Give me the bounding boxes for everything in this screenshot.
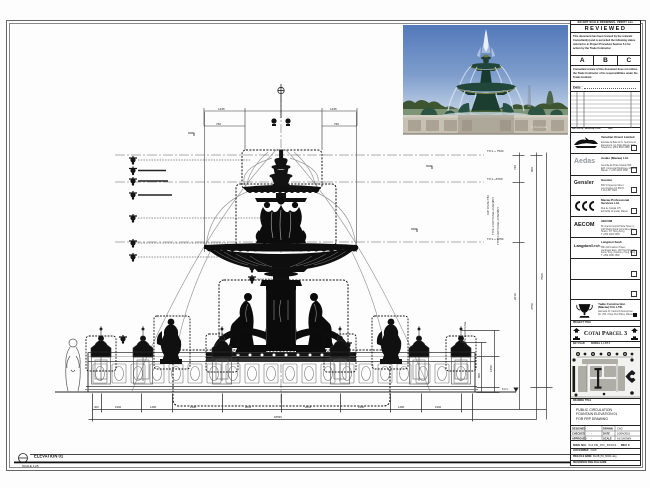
svg-text:-: - xyxy=(591,433,592,436)
svg-text:TYPE 3 FRP PANEL ASSEMBLY: TYPE 3 FRP PANEL ASSEMBLY xyxy=(491,197,495,235)
svg-text:740: 740 xyxy=(513,165,517,170)
svg-text:ELEVATION 01: ELEVATION 01 xyxy=(34,454,64,459)
svg-text:2818: 2818 xyxy=(245,405,252,409)
svg-text:CHECKED: CHECKED xyxy=(572,432,585,436)
svg-text:APPROVED: APPROVED xyxy=(572,437,587,441)
svg-text:760: 760 xyxy=(334,122,339,126)
svg-text:F.F.L: F.F.L xyxy=(502,387,509,391)
svg-text:400: 400 xyxy=(94,405,99,409)
svg-text:T.P.L + 4750: T.P.L + 4750 xyxy=(487,237,504,241)
svg-text:7500: 7500 xyxy=(540,273,544,280)
svg-text:T.P.L +6760: T.P.L +6760 xyxy=(487,177,503,181)
svg-text:DESIGNED: DESIGNED xyxy=(572,427,586,431)
svg-text:800: 800 xyxy=(530,167,534,172)
svg-text:18536: 18536 xyxy=(274,415,282,419)
svg-text:760: 760 xyxy=(216,122,221,126)
svg-text:800: 800 xyxy=(477,373,481,378)
svg-text:1650: 1650 xyxy=(489,365,493,372)
svg-text:2010: 2010 xyxy=(513,293,517,300)
svg-text:AS SHOWN: AS SHOWN xyxy=(617,437,631,441)
svg-text:CAD: CAD xyxy=(617,427,623,431)
svg-text:1480: 1480 xyxy=(150,405,157,409)
svg-text:4750: 4750 xyxy=(530,303,534,310)
svg-text:1900: 1900 xyxy=(115,405,122,409)
svg-text:10/04/2016: 10/04/2016 xyxy=(617,432,631,436)
svg-text:DRAWN: DRAWN xyxy=(603,427,613,431)
svg-text:TYPE 1 FRP PANEL: TYPE 1 FRP PANEL xyxy=(463,321,467,345)
svg-text:2818: 2818 xyxy=(305,405,312,409)
svg-text:2390: 2390 xyxy=(358,405,365,409)
svg-text:1900: 1900 xyxy=(435,405,442,409)
svg-text:DATE: DATE xyxy=(603,432,610,436)
svg-text:TYPE 2 FRP PANEL ASSEMBLY: TYPE 2 FRP PANEL ASSEMBLY xyxy=(496,207,500,245)
svg-text:SCALE 1:25: SCALE 1:25 xyxy=(22,464,39,468)
svg-text:© Concorde: © Concorde xyxy=(531,125,547,129)
svg-text:2390: 2390 xyxy=(190,405,197,409)
svg-text:FRP FINISH TBC: FRP FINISH TBC xyxy=(486,195,490,215)
svg-text:1480: 1480 xyxy=(398,405,405,409)
svg-text:SCALE: SCALE xyxy=(603,437,612,441)
svg-text:1495: 1495 xyxy=(218,107,225,111)
svg-text:1495: 1495 xyxy=(330,107,337,111)
svg-text:T.P.L + 7500: T.P.L + 7500 xyxy=(487,149,504,153)
